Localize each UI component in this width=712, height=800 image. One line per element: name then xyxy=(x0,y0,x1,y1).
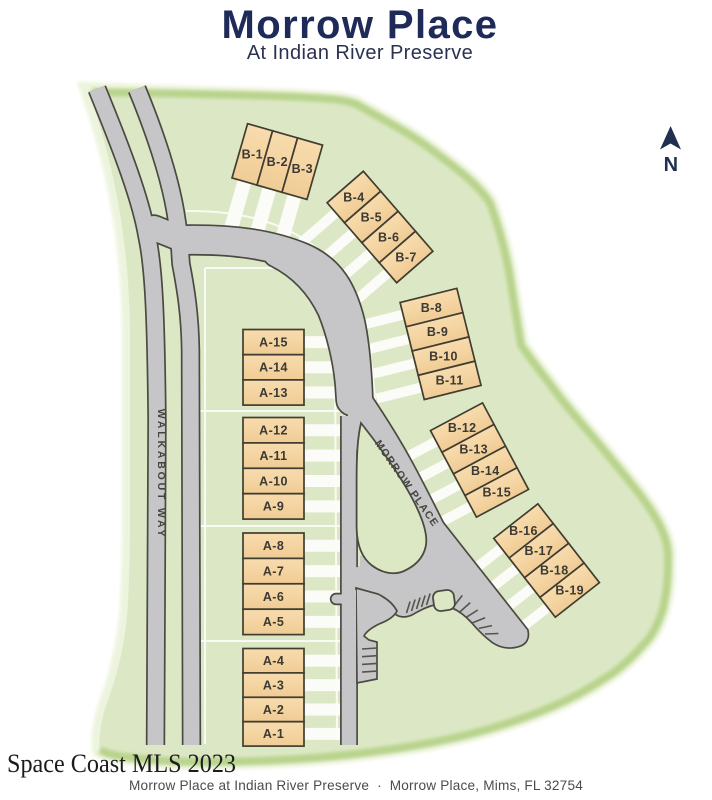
svg-text:B-8: B-8 xyxy=(421,301,442,315)
svg-text:B-15: B-15 xyxy=(482,486,511,500)
svg-text:A-6: A-6 xyxy=(263,590,284,604)
svg-text:A-3: A-3 xyxy=(263,678,284,692)
svg-text:WALKABOUT WAY: WALKABOUT WAY xyxy=(155,409,167,540)
svg-text:B-9: B-9 xyxy=(427,325,448,339)
svg-text:B-11: B-11 xyxy=(436,374,464,388)
svg-text:B-19: B-19 xyxy=(555,583,584,597)
svg-text:B-16: B-16 xyxy=(509,524,538,538)
svg-text:A-1: A-1 xyxy=(263,727,284,741)
svg-text:B-5: B-5 xyxy=(361,210,382,224)
svg-text:B-4: B-4 xyxy=(343,190,364,204)
svg-text:A-10: A-10 xyxy=(259,474,288,488)
svg-text:B-3: B-3 xyxy=(292,162,313,176)
svg-text:B-13: B-13 xyxy=(459,443,488,457)
svg-text:B-2: B-2 xyxy=(267,155,288,169)
svg-text:B-1: B-1 xyxy=(242,148,263,162)
svg-text:A-2: A-2 xyxy=(263,703,284,717)
svg-text:A-14: A-14 xyxy=(259,361,288,375)
svg-text:A-8: A-8 xyxy=(263,539,284,553)
svg-text:A-9: A-9 xyxy=(263,500,284,514)
svg-text:A-15: A-15 xyxy=(259,335,288,349)
svg-text:B-10: B-10 xyxy=(429,349,458,363)
svg-text:N: N xyxy=(664,154,678,176)
svg-text:A-4: A-4 xyxy=(263,654,284,668)
svg-text:A-12: A-12 xyxy=(259,424,288,438)
svg-text:B-14: B-14 xyxy=(471,464,500,478)
svg-text:B-7: B-7 xyxy=(395,250,416,264)
svg-text:A-11: A-11 xyxy=(259,449,287,463)
svg-text:A-13: A-13 xyxy=(259,386,288,400)
svg-text:A-5: A-5 xyxy=(263,615,284,629)
svg-text:B-18: B-18 xyxy=(540,564,569,578)
svg-text:A-7: A-7 xyxy=(263,564,284,578)
svg-text:B-12: B-12 xyxy=(448,421,477,435)
svg-text:B-17: B-17 xyxy=(525,544,554,558)
svg-text:B-6: B-6 xyxy=(378,230,399,244)
